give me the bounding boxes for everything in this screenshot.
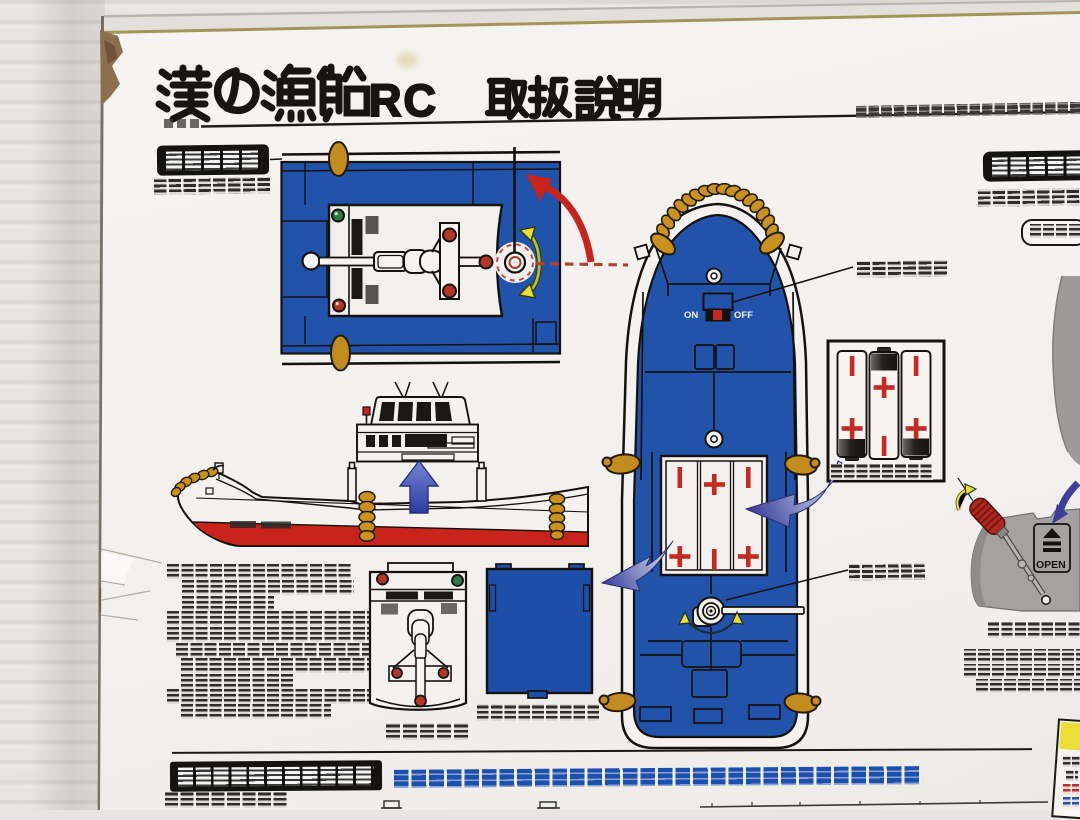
svg-text:RC: RC [369, 75, 438, 126]
svg-text:OPEN: OPEN [1036, 559, 1066, 571]
svg-text:OFF: OFF [734, 310, 753, 321]
svg-text:ON: ON [684, 310, 698, 321]
